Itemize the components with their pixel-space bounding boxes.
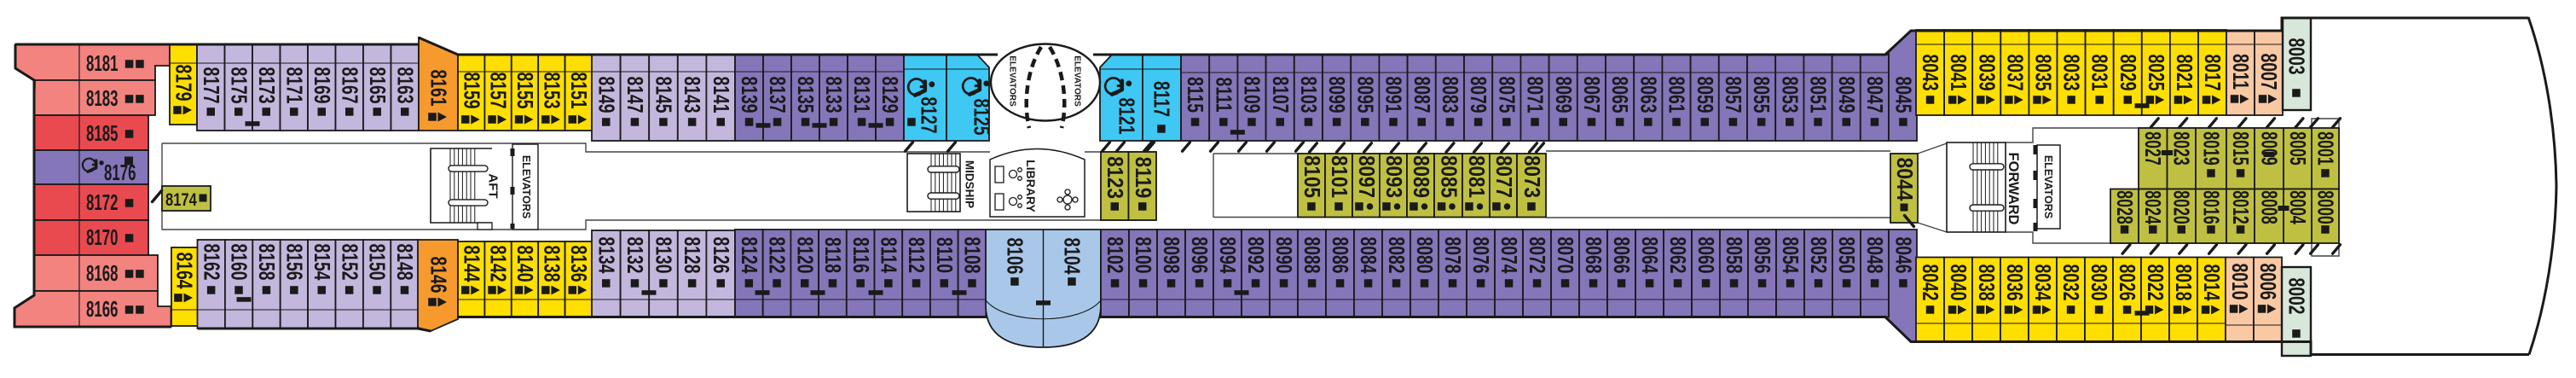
svg-text:8088: 8088 (1300, 236, 1323, 273)
svg-text:LIBRARY: LIBRARY (1024, 160, 1038, 212)
svg-text:8006: 8006 (2255, 263, 2279, 299)
svg-text:8057: 8057 (1721, 76, 1745, 113)
svg-text:8061: 8061 (1664, 76, 1688, 113)
svg-text:FORWARD: FORWARD (2006, 153, 2021, 225)
svg-text:8049: 8049 (1834, 76, 1858, 113)
svg-text:8169: 8169 (310, 67, 333, 103)
svg-text:ELEVATORS: ELEVATORS (520, 155, 532, 218)
svg-text:8162: 8162 (200, 243, 223, 280)
svg-text:8064: 8064 (1637, 236, 1661, 273)
svg-text:8114: 8114 (877, 237, 900, 273)
svg-text:8126: 8126 (709, 236, 732, 273)
svg-text:8156: 8156 (282, 243, 306, 280)
svg-text:8130: 8130 (651, 236, 675, 273)
svg-text:8019: 8019 (2199, 131, 2224, 166)
svg-text:8093: 8093 (1381, 155, 1406, 198)
svg-text:8073: 8073 (1520, 155, 1544, 198)
svg-text:ELEVATORS: ELEVATORS (1073, 55, 1082, 107)
svg-text:8149: 8149 (594, 76, 618, 113)
svg-text:8010: 8010 (2227, 263, 2251, 299)
svg-text:8069: 8069 (1551, 76, 1575, 113)
svg-text:8074: 8074 (1496, 236, 1520, 273)
svg-text:8146: 8146 (426, 256, 450, 293)
svg-text:8165: 8165 (365, 67, 389, 103)
svg-text:8062: 8062 (1665, 236, 1689, 273)
svg-text:8023: 8023 (2169, 131, 2194, 166)
svg-text:ELEVATORS: ELEVATORS (1008, 55, 1017, 107)
svg-text:8035: 8035 (2031, 54, 2055, 90)
svg-text:8028: 8028 (2112, 190, 2137, 224)
svg-text:8099: 8099 (1325, 76, 1349, 113)
svg-text:8158: 8158 (254, 243, 278, 280)
svg-text:8048: 8048 (1862, 236, 1886, 273)
svg-text:8001: 8001 (2313, 131, 2338, 166)
svg-text:8112: 8112 (905, 237, 929, 273)
svg-text:8038: 8038 (1974, 264, 1998, 300)
svg-text:8008: 8008 (2257, 190, 2282, 224)
svg-text:8000: 8000 (2313, 190, 2338, 224)
svg-text:8080: 8080 (1412, 236, 1436, 273)
svg-text:8103: 8103 (1296, 76, 1320, 113)
svg-text:8024: 8024 (2140, 190, 2165, 224)
svg-text:8091: 8091 (1381, 76, 1405, 113)
svg-text:8117: 8117 (1149, 81, 1173, 117)
svg-text:8095: 8095 (1353, 76, 1377, 113)
svg-text:8140: 8140 (512, 245, 536, 282)
svg-text:8170: 8170 (86, 224, 118, 250)
svg-text:8106: 8106 (1003, 237, 1027, 274)
svg-text:8096: 8096 (1187, 236, 1211, 273)
svg-text:8020: 8020 (2169, 190, 2194, 224)
svg-text:8089: 8089 (1409, 155, 1433, 198)
svg-text:8042: 8042 (1918, 264, 1942, 300)
svg-text:8082: 8082 (1384, 236, 1408, 273)
svg-text:8032: 8032 (2058, 264, 2082, 300)
svg-text:8016: 8016 (2199, 190, 2224, 224)
svg-text:8159: 8159 (460, 72, 483, 108)
svg-text:8065: 8065 (1608, 76, 1632, 113)
svg-text:8127: 8127 (917, 96, 941, 133)
svg-text:8144: 8144 (460, 245, 483, 282)
svg-text:8109: 8109 (1240, 76, 1264, 113)
svg-text:8171: 8171 (282, 67, 306, 103)
svg-text:8066: 8066 (1609, 236, 1633, 273)
svg-text:8174: 8174 (165, 190, 197, 210)
svg-text:8136: 8136 (566, 245, 590, 282)
svg-text:8043: 8043 (1919, 54, 1942, 90)
svg-text:8173: 8173 (254, 67, 278, 103)
svg-text:8118: 8118 (820, 237, 844, 273)
svg-text:8122: 8122 (765, 236, 789, 273)
svg-text:8123: 8123 (1103, 156, 1127, 199)
svg-text:8181: 8181 (86, 50, 118, 76)
svg-text:8040: 8040 (1946, 264, 1970, 300)
svg-text:8071: 8071 (1523, 76, 1547, 113)
svg-text:8015: 8015 (2228, 131, 2253, 166)
svg-text:ELEVATORS: ELEVATORS (2042, 155, 2054, 218)
svg-text:8179: 8179 (171, 64, 195, 101)
svg-text:8068: 8068 (1581, 236, 1605, 273)
svg-text:8072: 8072 (1525, 236, 1548, 273)
svg-text:8105: 8105 (1300, 155, 1324, 198)
svg-text:8076: 8076 (1468, 236, 1492, 273)
svg-text:8166: 8166 (86, 296, 118, 322)
svg-text:8058: 8058 (1722, 236, 1745, 273)
svg-text:8121: 8121 (1114, 97, 1138, 134)
svg-text:AFT: AFT (486, 173, 501, 198)
svg-text:8115: 8115 (1184, 77, 1207, 113)
svg-text:8172: 8172 (86, 189, 118, 215)
svg-text:8120: 8120 (793, 236, 817, 273)
svg-text:8052: 8052 (1806, 236, 1830, 273)
svg-text:8079: 8079 (1467, 76, 1491, 113)
svg-text:8183: 8183 (86, 85, 118, 111)
svg-text:8124: 8124 (737, 236, 761, 273)
svg-text:8054: 8054 (1778, 236, 1802, 273)
svg-text:8002: 8002 (2284, 277, 2308, 314)
svg-text:8163: 8163 (393, 67, 417, 103)
svg-text:8125: 8125 (970, 98, 993, 135)
svg-text:8157: 8157 (486, 72, 510, 108)
svg-text:8094: 8094 (1215, 236, 1239, 273)
svg-text:8034: 8034 (2030, 264, 2054, 300)
svg-text:8067: 8067 (1579, 76, 1603, 113)
svg-text:8110: 8110 (932, 237, 956, 273)
svg-text:8145: 8145 (651, 76, 675, 113)
svg-text:8044: 8044 (1892, 157, 1916, 201)
svg-text:8160: 8160 (227, 243, 251, 280)
svg-text:8021: 8021 (2172, 54, 2196, 90)
svg-text:8026: 8026 (2115, 264, 2139, 300)
svg-text:8078: 8078 (1440, 236, 1464, 273)
svg-text:8104: 8104 (1060, 237, 1084, 274)
svg-text:8059: 8059 (1693, 76, 1716, 113)
svg-text:8045: 8045 (1891, 76, 1915, 113)
svg-text:MIDSHIP: MIDSHIP (964, 160, 976, 208)
svg-text:8132: 8132 (622, 236, 646, 273)
svg-text:8100: 8100 (1131, 236, 1155, 273)
svg-text:8148: 8148 (392, 243, 416, 280)
svg-text:8102: 8102 (1103, 236, 1126, 273)
svg-text:8018: 8018 (2171, 264, 2195, 300)
svg-text:8087: 8087 (1410, 76, 1433, 113)
svg-text:8143: 8143 (680, 76, 704, 113)
svg-text:8133: 8133 (821, 76, 845, 113)
svg-text:8031: 8031 (2087, 54, 2111, 90)
svg-text:8077: 8077 (1491, 155, 1516, 198)
svg-text:8153: 8153 (540, 72, 564, 108)
svg-text:8053: 8053 (1778, 76, 1802, 113)
svg-text:8039: 8039 (1975, 54, 1999, 90)
svg-text:8168: 8168 (86, 260, 118, 286)
svg-text:8137: 8137 (765, 76, 789, 113)
svg-text:8139: 8139 (737, 76, 761, 113)
svg-text:8022: 8022 (2143, 264, 2167, 300)
svg-text:8007: 8007 (2256, 53, 2280, 90)
svg-text:8152: 8152 (338, 243, 362, 280)
svg-text:8116: 8116 (848, 237, 872, 273)
svg-text:8097: 8097 (1354, 155, 1379, 198)
svg-text:8090: 8090 (1271, 236, 1295, 273)
svg-text:8036: 8036 (2002, 264, 2026, 300)
svg-text:8029: 8029 (2116, 54, 2139, 90)
svg-text:8075: 8075 (1495, 76, 1519, 113)
svg-text:8167: 8167 (338, 67, 362, 103)
svg-text:8131: 8131 (849, 76, 873, 113)
svg-text:8119: 8119 (1130, 157, 1155, 199)
svg-text:8060: 8060 (1693, 236, 1717, 273)
svg-text:8185: 8185 (86, 120, 118, 146)
svg-text:8009: 8009 (2257, 131, 2282, 166)
svg-text:8129: 8129 (877, 76, 901, 113)
svg-text:8154: 8154 (310, 243, 333, 280)
svg-text:8011: 8011 (2228, 54, 2252, 90)
svg-text:8161: 8161 (426, 69, 450, 106)
svg-text:8063: 8063 (1636, 76, 1660, 113)
svg-text:8175: 8175 (227, 67, 251, 103)
svg-text:8135: 8135 (793, 76, 817, 113)
svg-text:8047: 8047 (1862, 76, 1886, 113)
svg-text:8033: 8033 (2059, 54, 2083, 90)
svg-text:8084: 8084 (1356, 236, 1380, 273)
svg-text:8177: 8177 (199, 67, 223, 103)
svg-text:8027: 8027 (2140, 131, 2165, 166)
svg-text:8025: 8025 (2144, 54, 2168, 90)
svg-text:8086: 8086 (1328, 236, 1352, 273)
svg-text:8046: 8046 (1891, 236, 1915, 273)
svg-text:8041: 8041 (1947, 54, 1971, 90)
svg-text:8107: 8107 (1268, 76, 1292, 113)
svg-text:8147: 8147 (622, 76, 646, 113)
svg-text:8128: 8128 (680, 236, 704, 273)
svg-text:8051: 8051 (1806, 76, 1830, 113)
svg-text:8150: 8150 (365, 243, 389, 280)
svg-text:8083: 8083 (1438, 76, 1462, 113)
svg-text:8151: 8151 (566, 72, 590, 108)
svg-text:8012: 8012 (2228, 190, 2253, 224)
svg-text:8030: 8030 (2087, 264, 2110, 300)
svg-text:8055: 8055 (1750, 76, 1774, 113)
svg-text:8056: 8056 (1750, 236, 1774, 273)
svg-text:8037: 8037 (2003, 54, 2027, 90)
svg-text:8134: 8134 (594, 236, 618, 273)
svg-text:8050: 8050 (1834, 236, 1858, 273)
svg-text:8070: 8070 (1553, 236, 1577, 273)
svg-text:8081: 8081 (1464, 155, 1489, 198)
svg-text:8141: 8141 (709, 76, 732, 113)
svg-text:8164: 8164 (172, 252, 196, 288)
svg-text:8111: 8111 (1212, 78, 1236, 113)
svg-text:8098: 8098 (1159, 236, 1183, 273)
svg-text:8142: 8142 (486, 245, 510, 282)
svg-text:8017: 8017 (2200, 54, 2224, 90)
svg-text:8138: 8138 (540, 245, 564, 282)
svg-text:8085: 8085 (1436, 155, 1461, 198)
svg-text:8003: 8003 (2284, 38, 2308, 74)
svg-text:8014: 8014 (2199, 264, 2223, 300)
svg-text:8155: 8155 (512, 72, 536, 108)
svg-text:8101: 8101 (1327, 155, 1352, 198)
svg-text:8108: 8108 (960, 236, 984, 273)
svg-text:8092: 8092 (1243, 236, 1267, 273)
svg-text:8005: 8005 (2285, 131, 2310, 166)
